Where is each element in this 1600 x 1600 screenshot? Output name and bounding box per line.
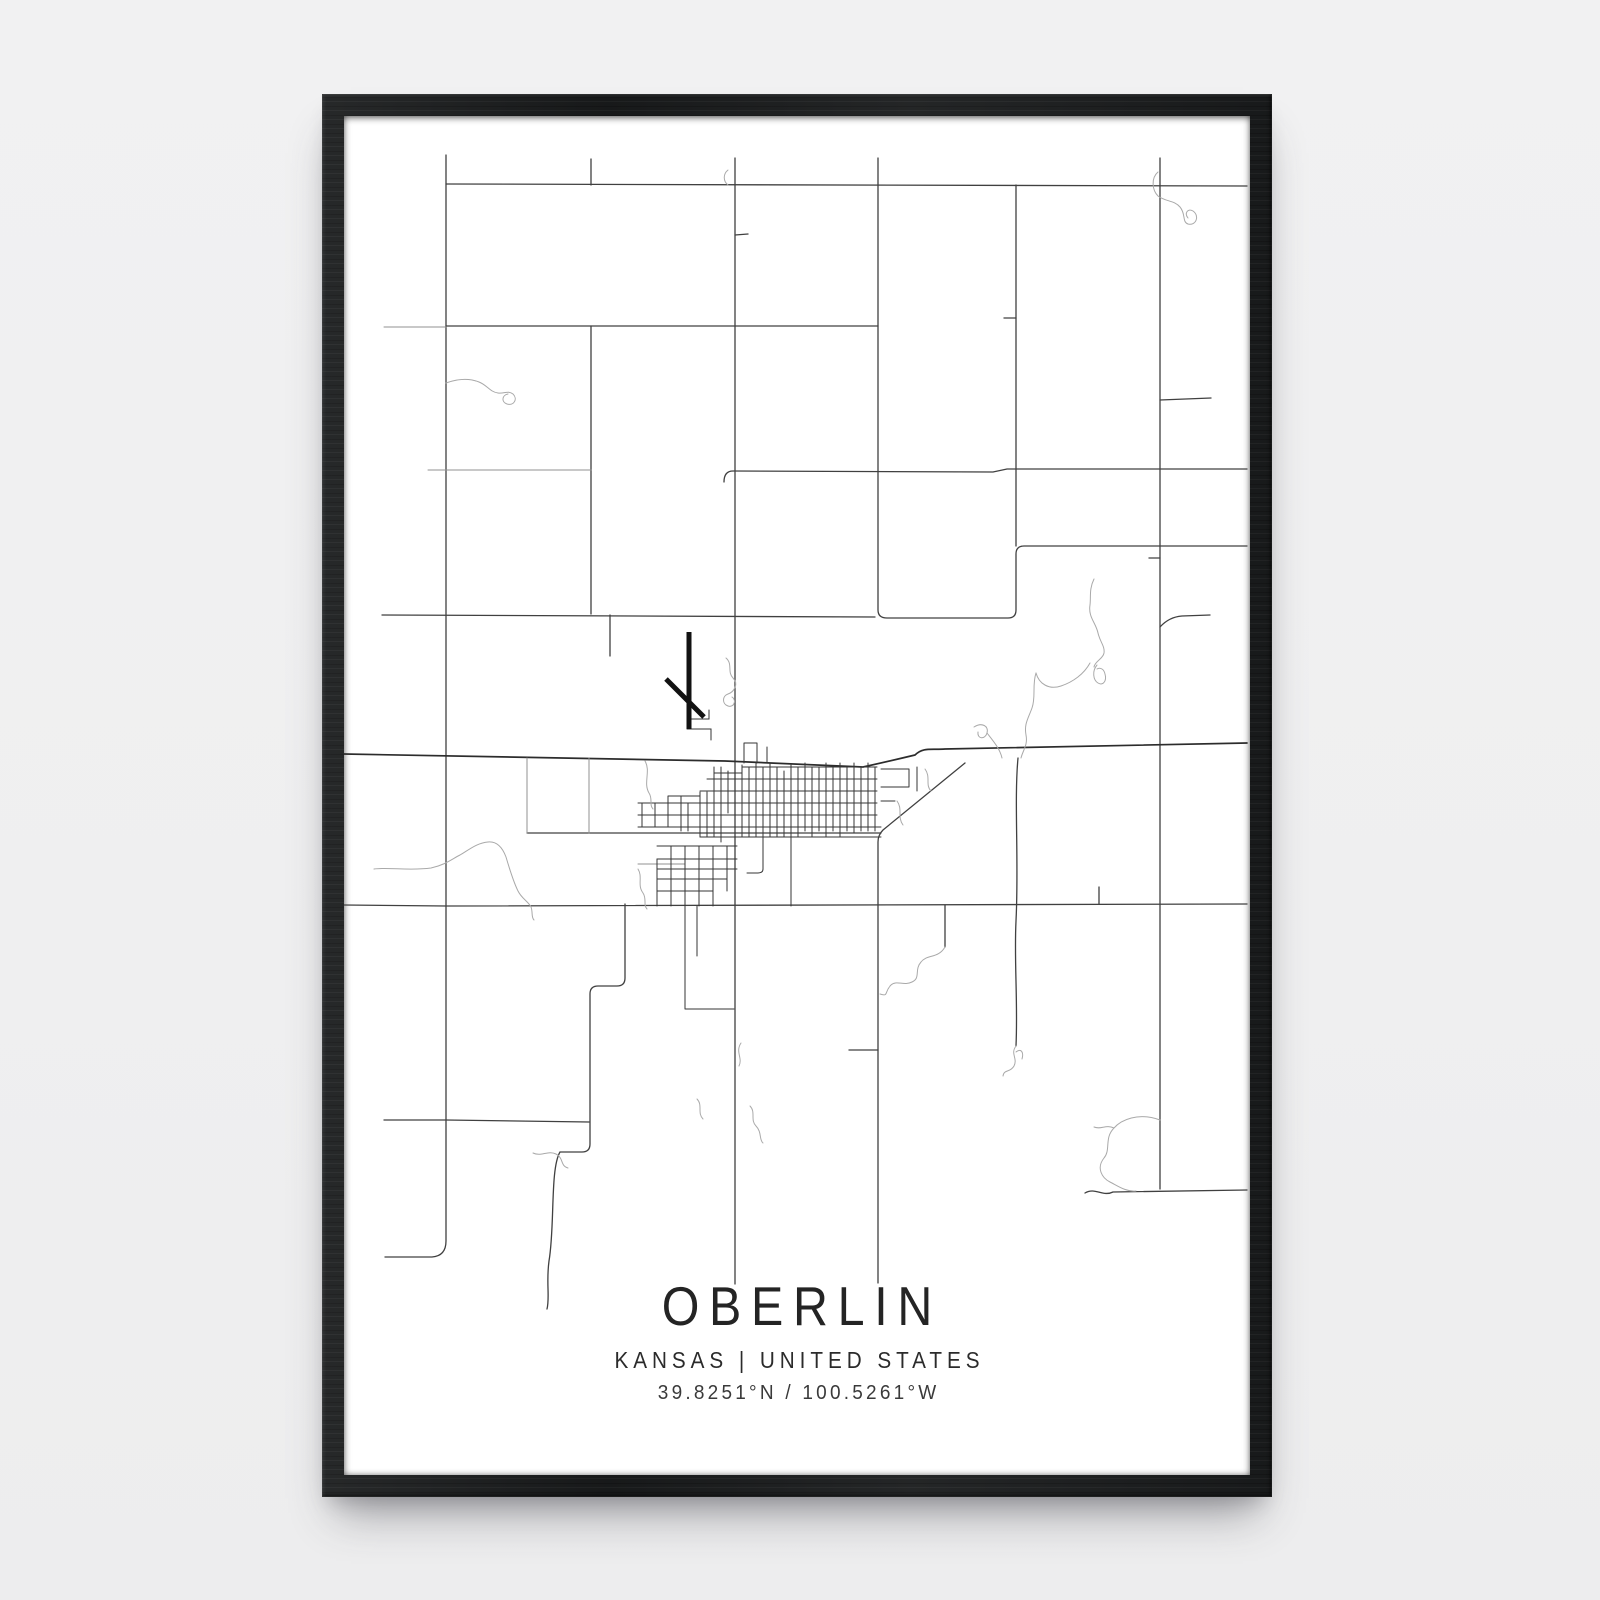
product-scene: OBERLIN KANSAS | UNITED STATES 39.8251°N… <box>0 0 1600 1600</box>
creeks-layer <box>374 170 1197 1191</box>
poster-frame: OBERLIN KANSAS | UNITED STATES 39.8251°N… <box>322 94 1272 1497</box>
rural-roads-layer <box>344 155 1247 1309</box>
minor-roads-layer <box>384 327 685 864</box>
street-map <box>344 116 1250 1475</box>
airport-runways-icon <box>666 632 704 729</box>
city-streets-layer <box>638 710 917 1009</box>
highway-layer <box>344 743 1247 767</box>
map-poster: OBERLIN KANSAS | UNITED STATES 39.8251°N… <box>344 116 1250 1475</box>
